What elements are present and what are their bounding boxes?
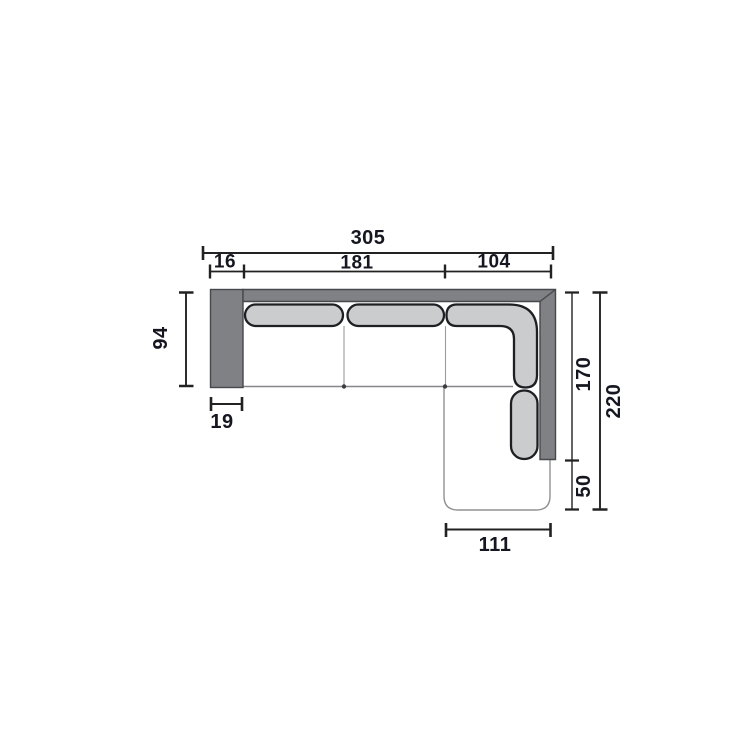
dim-label-right-side-upper: 170 bbox=[574, 357, 594, 392]
dim-body-depth bbox=[179, 293, 194, 387]
sofa-body bbox=[243, 301, 550, 510]
sofa-dimension-drawing: 305 16 181 104 94 19 170 50 220 111 bbox=[0, 0, 746, 746]
left-armrest bbox=[211, 290, 244, 388]
dim-label-body-depth: 94 bbox=[151, 326, 171, 349]
back-cushion-1 bbox=[245, 305, 343, 327]
dim-label-back-segment-middle: 181 bbox=[340, 254, 373, 273]
seam-notch-right bbox=[443, 384, 447, 388]
dim-label-armrest-width: 19 bbox=[210, 412, 233, 432]
dim-label-back-segment-left: 16 bbox=[214, 253, 236, 272]
sofa-plan-svg bbox=[0, 0, 746, 746]
side-cushion bbox=[511, 391, 538, 460]
dim-label-right-side-lower: 50 bbox=[574, 474, 594, 497]
dim-label-overall-width: 305 bbox=[351, 228, 386, 248]
seam-notch-left bbox=[342, 384, 346, 388]
dim-label-chaise-width: 111 bbox=[479, 535, 512, 555]
dim-label-overall-depth: 220 bbox=[604, 384, 624, 419]
dim-armrest-width bbox=[211, 397, 242, 411]
back-cushion-2 bbox=[348, 305, 445, 327]
dim-label-back-segment-right: 104 bbox=[477, 253, 510, 272]
